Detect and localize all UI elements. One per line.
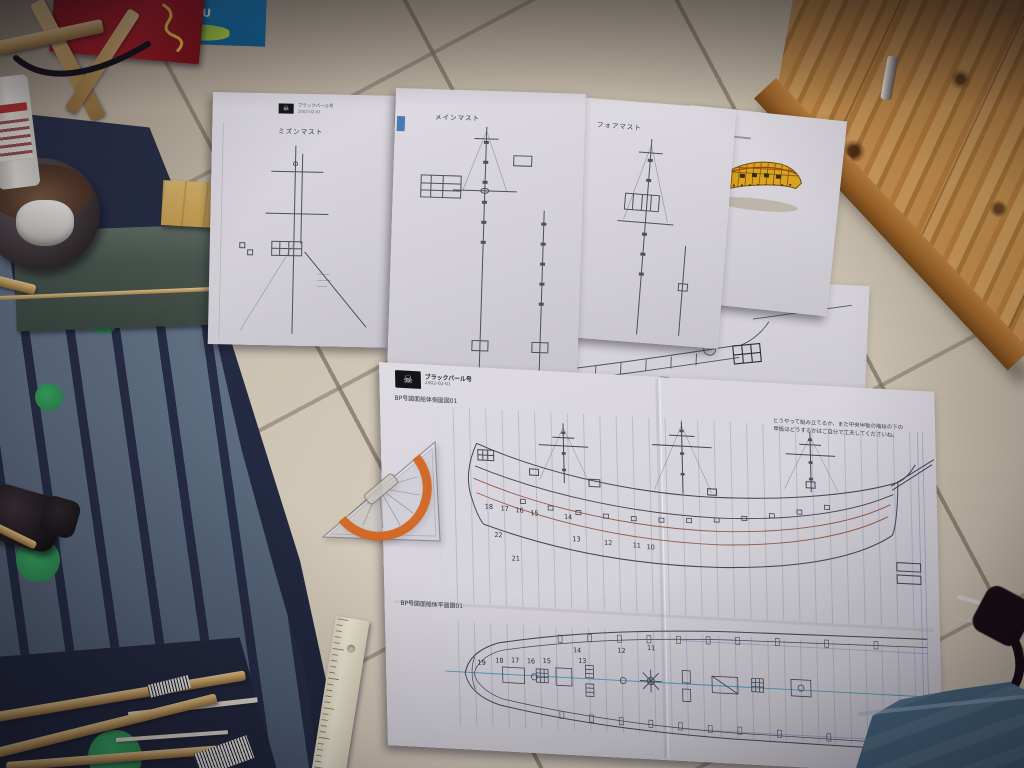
svg-text:14: 14: [564, 513, 572, 522]
svg-text:21: 21: [512, 554, 520, 563]
svg-text:10: 10: [647, 543, 655, 552]
svg-text:15: 15: [543, 657, 551, 666]
main-mast-drawing: [387, 88, 586, 379]
svg-text:11: 11: [633, 541, 641, 550]
svg-text:22: 22: [494, 531, 502, 540]
svg-text:12: 12: [617, 646, 625, 655]
black-cable: [10, 30, 160, 90]
svg-text:16: 16: [527, 657, 535, 666]
mizzen-mast-drawing: [208, 92, 395, 348]
svg-text:14: 14: [573, 646, 581, 655]
svg-text:17: 17: [511, 656, 519, 665]
photo-scene: ECOU: [0, 0, 1024, 768]
can-label-text-lines: [0, 118, 33, 162]
white-cup: [16, 200, 74, 246]
fore-mast-drawing: [558, 97, 736, 349]
rug-green-dot: [35, 383, 63, 411]
sheet-fore-mast: フォアマスト: [558, 97, 736, 349]
svg-text:11: 11: [647, 644, 655, 653]
svg-text:16: 16: [515, 506, 523, 515]
sheet-mizzen-mast: ☠ ブラックパール号 2002-02-01 ミズンマスト: [208, 92, 395, 348]
svg-text:15: 15: [530, 509, 538, 518]
ruler-hole: [346, 644, 355, 653]
svg-text:17: 17: [501, 504, 509, 513]
svg-text:18: 18: [495, 656, 503, 665]
svg-text:19: 19: [478, 658, 486, 667]
sheet-main-mast: メインマスト: [387, 88, 586, 379]
set-square: [305, 425, 465, 565]
can-label-stripe: [0, 102, 27, 114]
svg-text:13: 13: [572, 535, 580, 544]
svg-text:13: 13: [578, 657, 586, 666]
svg-text:12: 12: [604, 539, 612, 548]
svg-text:18: 18: [485, 502, 493, 511]
